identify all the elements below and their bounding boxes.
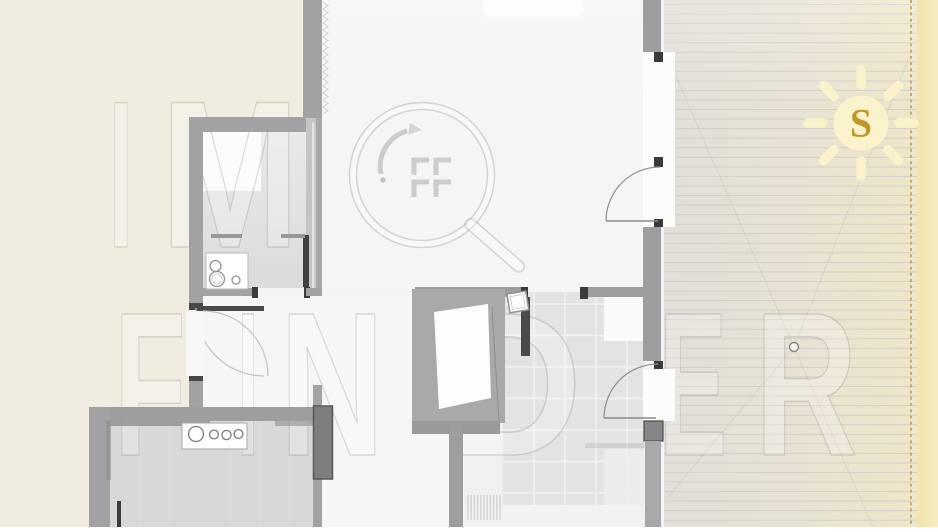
- svg-text:I: I: [237, 270, 259, 499]
- svg-text:F: F: [114, 270, 186, 499]
- svg-text:R: R: [755, 270, 858, 499]
- svg-text:S: S: [850, 101, 872, 146]
- svg-text:I: I: [109, 57, 133, 292]
